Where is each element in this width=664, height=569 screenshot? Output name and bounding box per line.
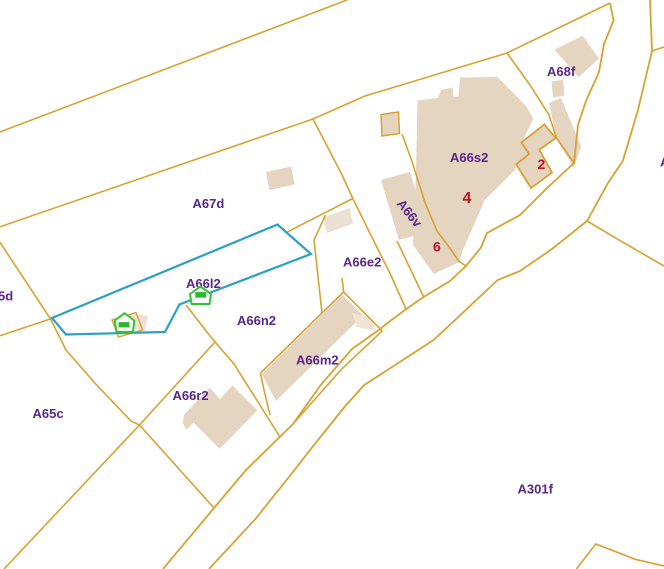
svg-text:A301f: A301f	[518, 482, 554, 497]
svg-text:A65c: A65c	[33, 406, 64, 421]
svg-text:A68f: A68f	[547, 64, 576, 79]
svg-text:A66s2: A66s2	[450, 150, 488, 165]
svg-text:5d: 5d	[0, 289, 13, 304]
svg-text:2: 2	[538, 156, 546, 172]
svg-text:A67d: A67d	[193, 196, 225, 211]
svg-text:4: 4	[463, 190, 472, 207]
svg-text:A66e2: A66e2	[343, 255, 381, 270]
svg-text:A6: A6	[660, 155, 664, 170]
svg-text:A66m2: A66m2	[296, 353, 339, 368]
svg-text:A66n2: A66n2	[237, 313, 276, 328]
svg-text:6: 6	[433, 239, 441, 255]
svg-text:A66r2: A66r2	[173, 388, 209, 403]
